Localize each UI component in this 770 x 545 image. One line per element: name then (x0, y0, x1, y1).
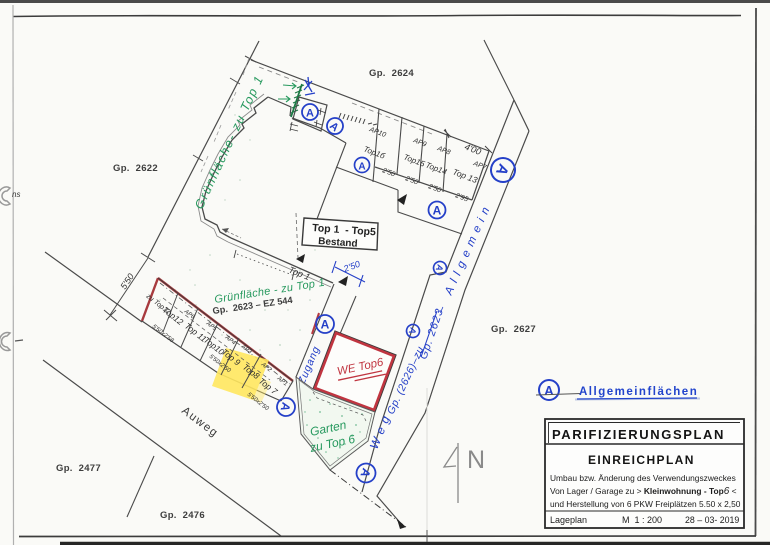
svg-text:N: N (467, 446, 485, 474)
svg-text:Gp. 2627: Gp. 2627 (491, 324, 536, 335)
svg-text:Lageplan: Lageplan (550, 515, 587, 525)
svg-text:A: A (306, 108, 314, 120)
svg-text:A: A (433, 204, 442, 218)
svg-text:28 – 03- 2019: 28 – 03- 2019 (685, 515, 739, 525)
svg-text:M 1 : 200: M 1 : 200 (622, 515, 662, 525)
svg-text:ns: ns (12, 190, 20, 199)
svg-text:Gp. 2622: Gp. 2622 (113, 163, 158, 174)
svg-text:Gp. 2476: Gp. 2476 (160, 510, 205, 521)
svg-text:A: A (358, 162, 365, 173)
svg-text:A: A (321, 318, 330, 332)
svg-text:A: A (544, 383, 554, 398)
svg-text:Gp. 2477: Gp. 2477 (56, 463, 101, 474)
svg-text:Umbau bzw. Änderung des Verwen: Umbau bzw. Änderung des Verwendungszweck… (550, 473, 736, 483)
svg-text:Von Lager / Garage zu > Kleinw: Von Lager / Garage zu > Kleinwohnung - T… (550, 486, 737, 497)
svg-text:Gp. 2624: Gp. 2624 (369, 68, 414, 79)
svg-text:und Herstellung von 6 PKW Frei: und Herstellung von 6 PKW Freiplätzen 5.… (550, 499, 741, 509)
svg-text:PARIFIZIERUNGSPLAN: PARIFIZIERUNGSPLAN (552, 427, 725, 442)
svg-text:Allgemeinflächen: Allgemeinflächen (579, 386, 698, 398)
svg-text:EINREICHPLAN: EINREICHPLAN (588, 453, 695, 467)
